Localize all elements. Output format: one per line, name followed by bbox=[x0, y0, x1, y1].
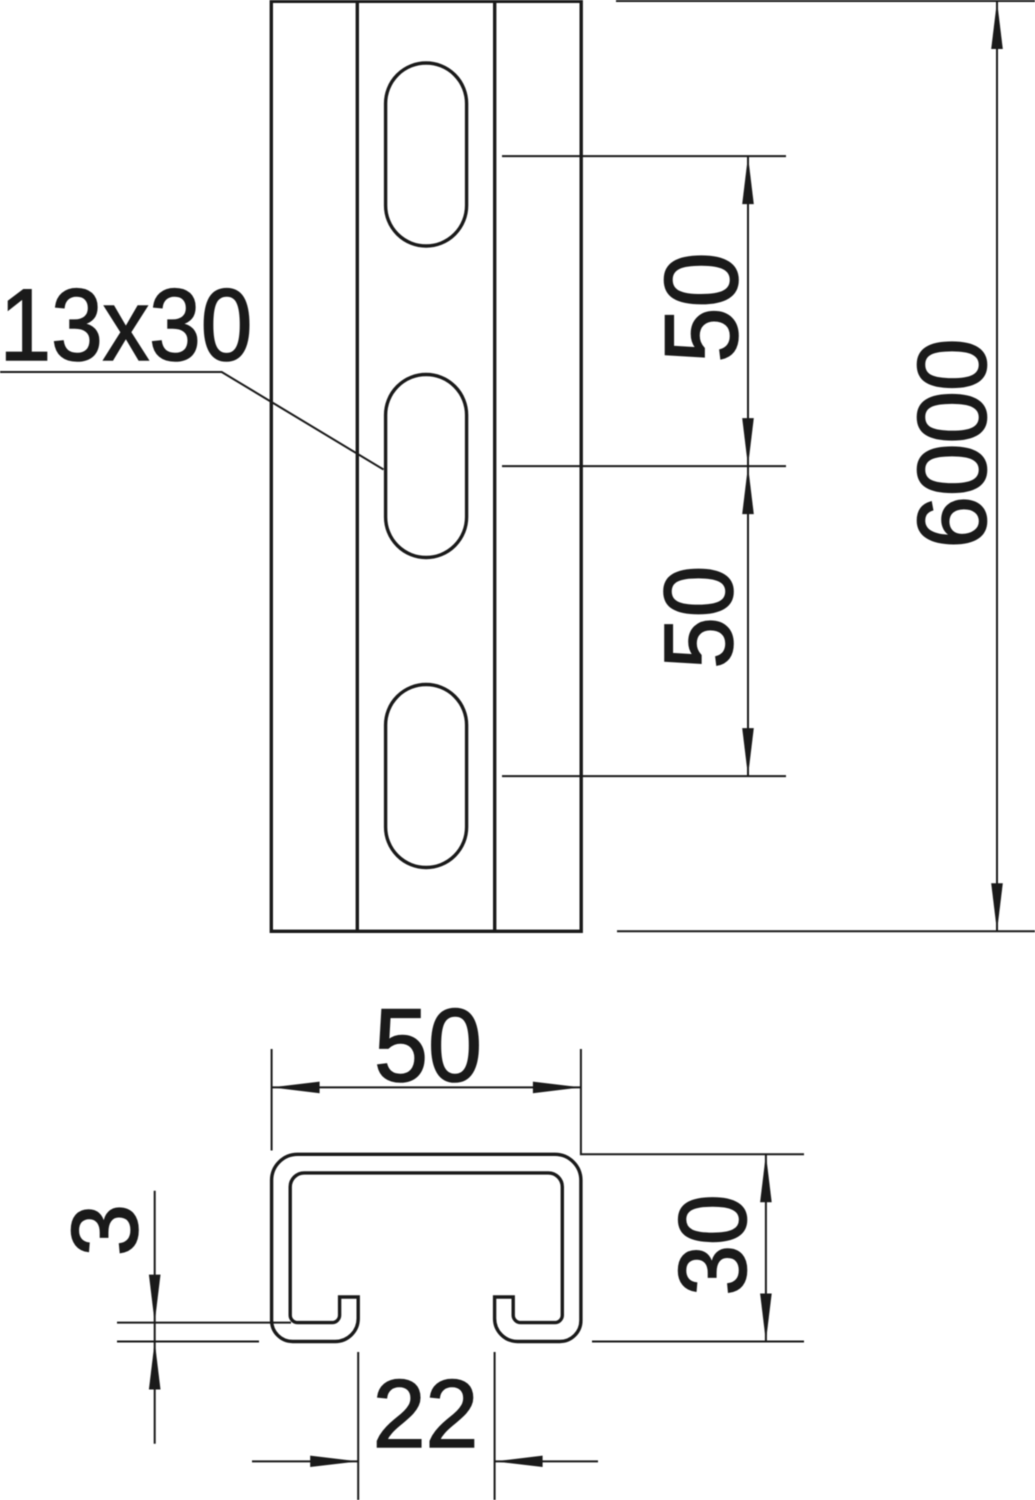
svg-text:6000: 6000 bbox=[898, 339, 1007, 549]
svg-text:22: 22 bbox=[373, 1361, 479, 1468]
svg-text:13x30: 13x30 bbox=[0, 267, 252, 382]
svg-text:30: 30 bbox=[660, 1194, 767, 1295]
svg-text:50: 50 bbox=[644, 252, 760, 363]
svg-text:50: 50 bbox=[644, 566, 753, 669]
svg-text:3: 3 bbox=[53, 1204, 157, 1256]
svg-text:50: 50 bbox=[374, 988, 482, 1104]
